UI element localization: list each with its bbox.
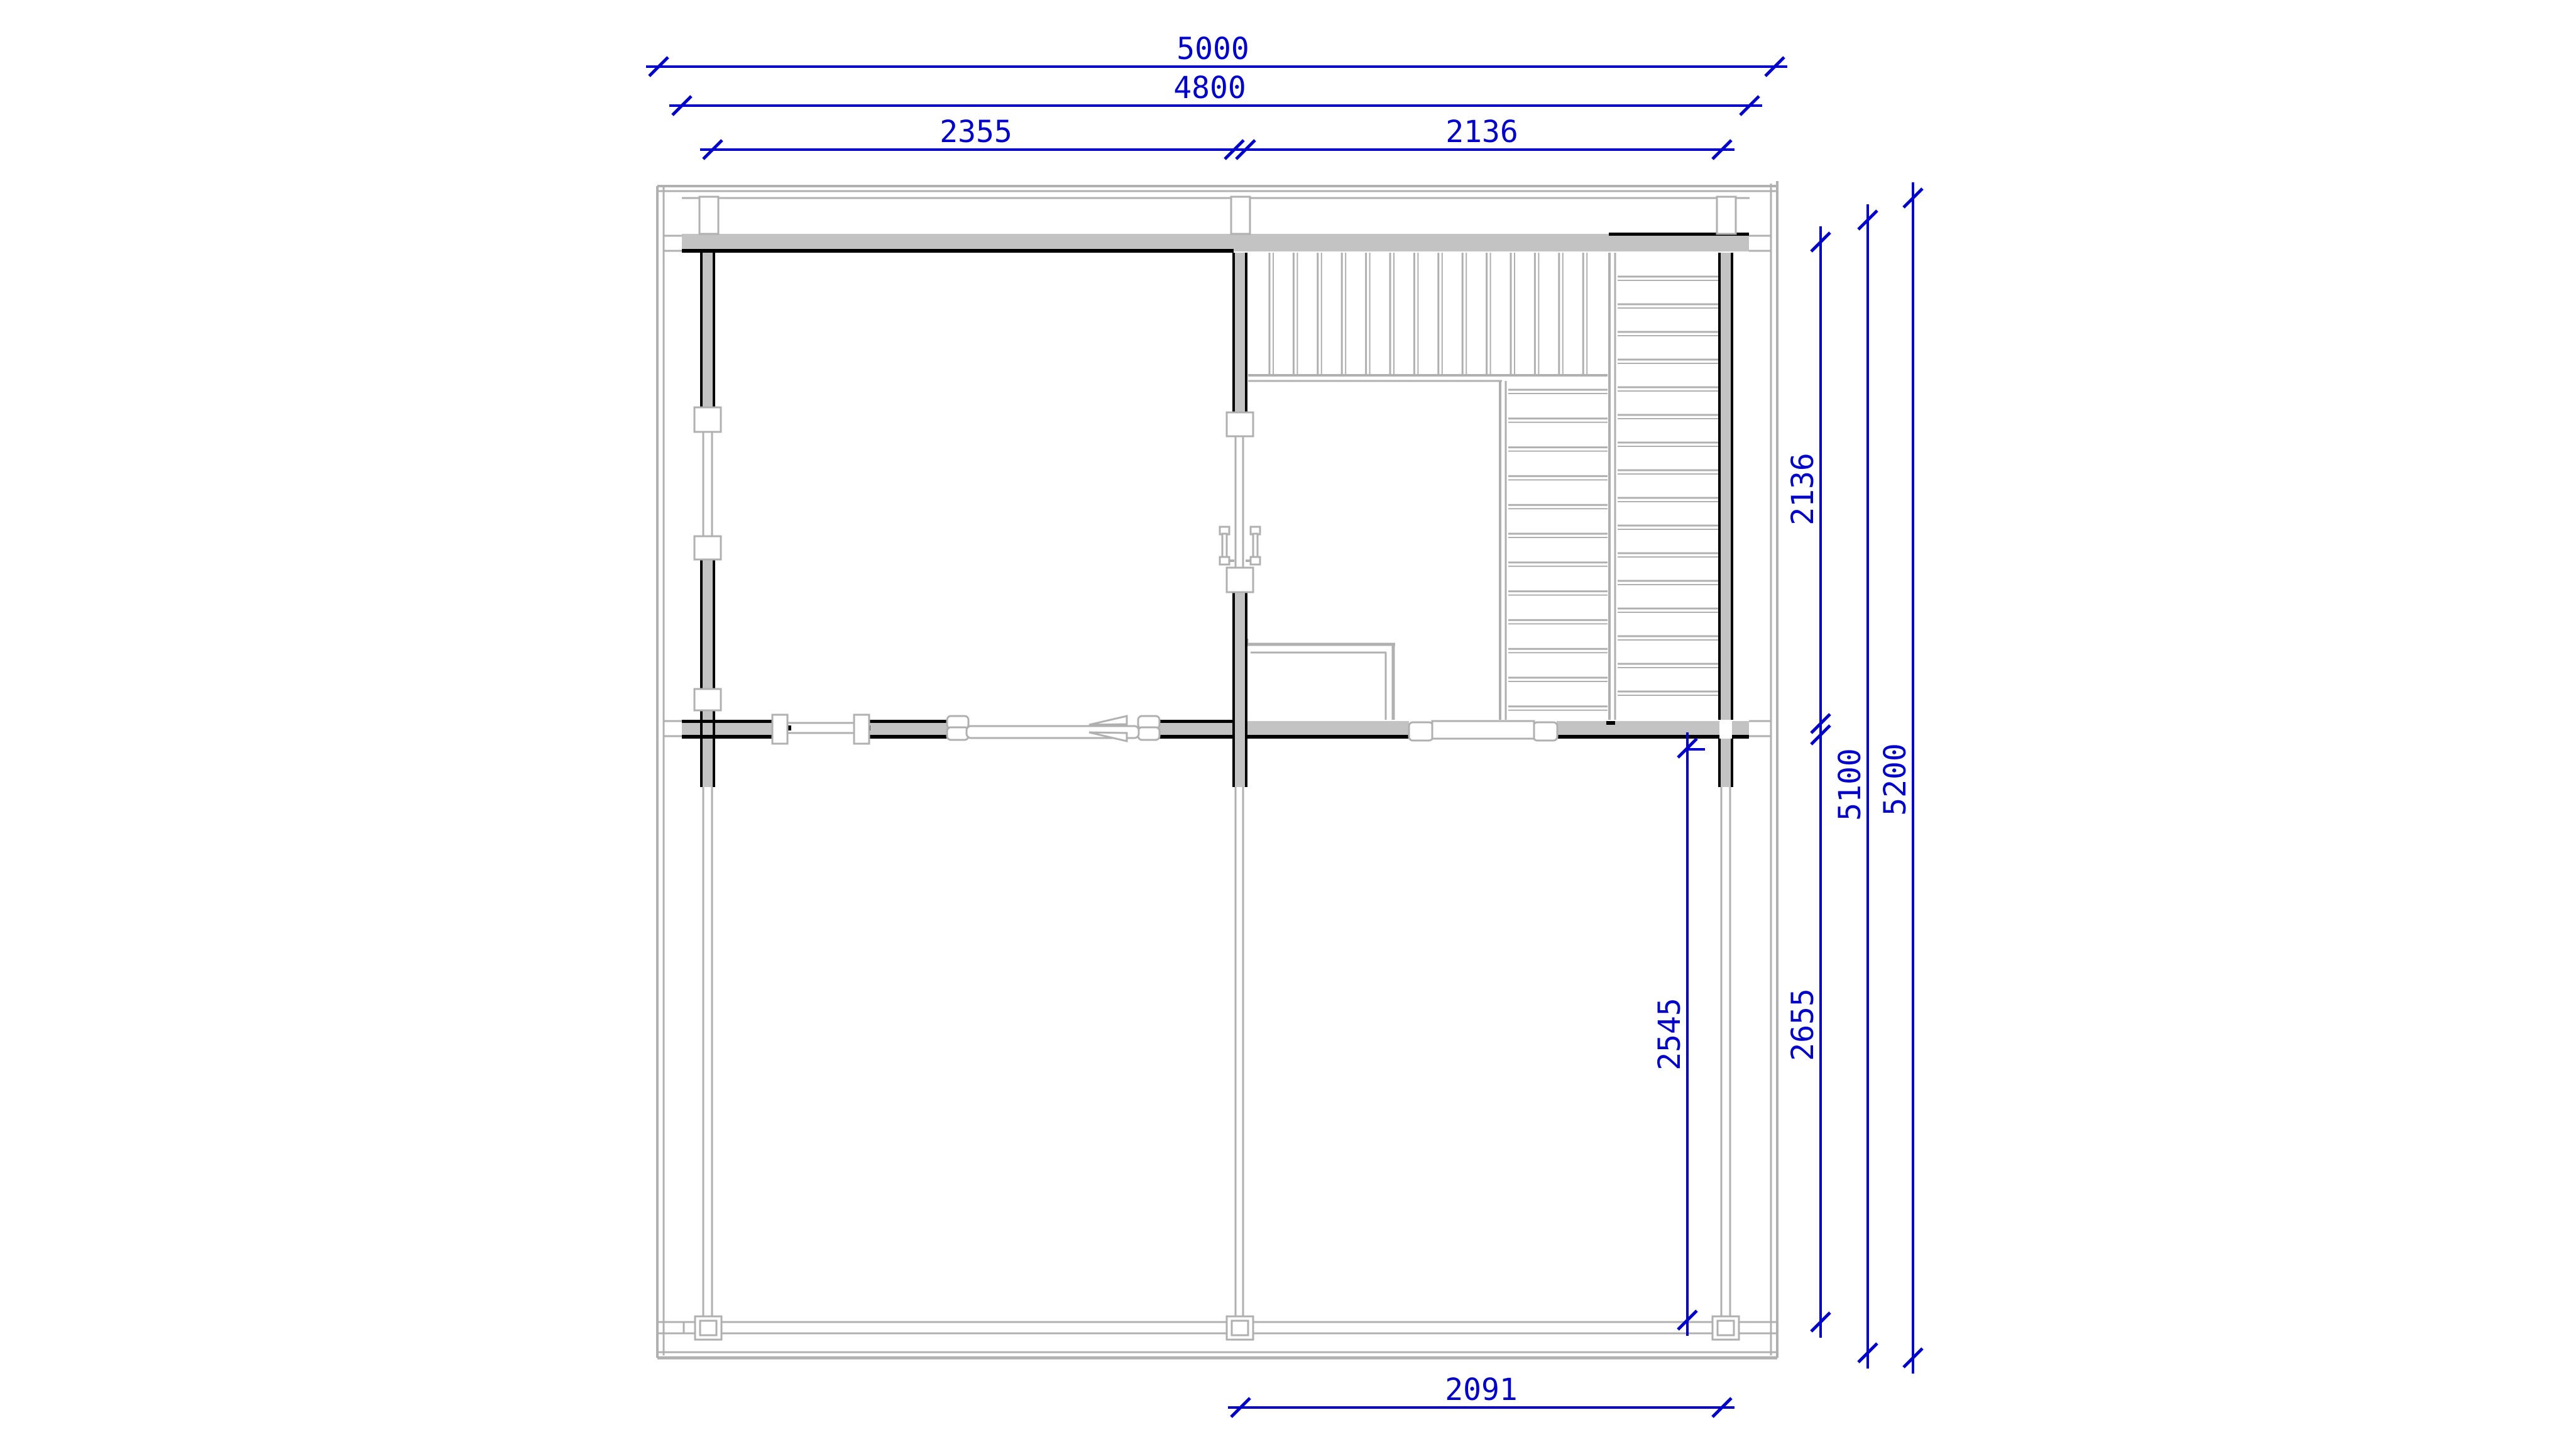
dim-room-width-label: 2355 bbox=[940, 114, 1012, 150]
left-wall-edge-2a bbox=[700, 558, 703, 690]
dim-overall-height-label: 5200 bbox=[1878, 743, 1913, 816]
floor-joint-square-left-inner bbox=[700, 1321, 716, 1335]
wall-joint-bracket-m2 bbox=[1227, 568, 1253, 592]
door2-frame-right bbox=[1533, 722, 1557, 741]
door-handle-left-stem bbox=[1222, 534, 1227, 558]
mid-wall-seg-a bbox=[682, 721, 774, 736]
mid-vert-wall-stub bbox=[1234, 739, 1246, 787]
mid-vert-edge-2b bbox=[1245, 591, 1247, 739]
floor-joint-square-right-inner bbox=[1718, 1321, 1734, 1335]
left-wall-stub-b bbox=[713, 739, 715, 787]
left-wall-stub bbox=[701, 739, 714, 787]
right-wall bbox=[1719, 253, 1732, 720]
wall-joint-bracket-m1 bbox=[1227, 412, 1253, 436]
wall-joint-bracket-w1 bbox=[772, 715, 787, 744]
wall-joint-bracket-l1 bbox=[694, 407, 721, 432]
top-log-wall bbox=[682, 234, 1749, 251]
wall-joint-bracket-w2 bbox=[854, 715, 869, 744]
mid-wall-top-b bbox=[869, 720, 953, 723]
left-wall-edge-3a bbox=[700, 709, 703, 739]
dim-bottom-width-label: 2091 bbox=[1445, 1372, 1518, 1408]
door1-post-right-b bbox=[1138, 727, 1159, 740]
right-wall-stub-a bbox=[1718, 739, 1721, 787]
dim-terrace-height-label: 2545 bbox=[1652, 998, 1687, 1071]
mid-vert-wall-seg-2 bbox=[1234, 591, 1246, 739]
mid-wall-seg-d bbox=[1246, 721, 1409, 736]
door2-leaf bbox=[1432, 721, 1534, 739]
dim-stair-width-label: 2136 bbox=[1445, 114, 1518, 150]
mid-wall-bot-f bbox=[1732, 735, 1749, 739]
mid-wall-seg-c bbox=[1154, 721, 1234, 736]
mid-vert-edge-2a bbox=[1232, 591, 1235, 739]
log-end-stub-left bbox=[699, 197, 718, 234]
mid-vert-edge-1a bbox=[1232, 253, 1235, 414]
door-handle-right-foot bbox=[1251, 557, 1260, 565]
log-end-stub-mid bbox=[1231, 197, 1250, 234]
right-wall-stub-b bbox=[1731, 739, 1733, 787]
dim-log-wall-width-label: 4800 bbox=[1173, 70, 1246, 106]
mid-wall-top-a bbox=[682, 720, 774, 723]
left-wall-edge-3b bbox=[713, 709, 715, 739]
mid-wall-bot-d bbox=[1246, 735, 1409, 739]
mid-vert-stub-b bbox=[1245, 739, 1247, 787]
left-wall-stub-a bbox=[700, 739, 703, 787]
left-wall-seg-1 bbox=[701, 253, 714, 409]
left-wall-edge-1a bbox=[700, 253, 703, 409]
mid-wall-bot-a bbox=[682, 735, 774, 739]
right-wall-edge-a bbox=[1718, 253, 1721, 720]
mid-wall-bot-b bbox=[869, 735, 953, 739]
log-end-stub-right bbox=[1717, 197, 1736, 234]
door-handle-right-stem bbox=[1253, 534, 1258, 558]
wall-joint-bracket-l3 bbox=[694, 689, 721, 710]
mid-wall-seg-f bbox=[1732, 721, 1749, 736]
door1-post-left-b bbox=[947, 727, 968, 740]
left-wall-seg-3 bbox=[701, 709, 714, 739]
dim-stair-height-label: 2136 bbox=[1785, 453, 1821, 526]
floor-joint-square-mid-inner bbox=[1232, 1321, 1248, 1335]
wall-joint-bracket-l2 bbox=[694, 536, 721, 559]
mid-vert-edge-1b bbox=[1245, 253, 1247, 414]
floor-plan-canvas: 5000480023552136213626555100520025452091 bbox=[0, 0, 2576, 1449]
right-wall-stub bbox=[1719, 739, 1732, 787]
left-wall-edge-1b bbox=[713, 253, 715, 409]
door1-swing-flag-up bbox=[1089, 716, 1127, 725]
mid-vert-stub-a bbox=[1232, 739, 1235, 787]
mid-wall-bot-c bbox=[1154, 735, 1234, 739]
dim-lower-height-label: 2655 bbox=[1785, 988, 1821, 1061]
dim-overall-width-label: 5000 bbox=[1176, 31, 1249, 67]
mid-vert-wall-seg-1 bbox=[1234, 253, 1246, 414]
floor-plan-drawing: 5000480023552136213626555100520025452091 bbox=[0, 0, 2576, 1449]
door-handle-left-foot bbox=[1220, 557, 1229, 565]
top-wall-bottom-edge bbox=[682, 249, 1234, 253]
mid-wall-bot-e bbox=[1557, 735, 1719, 739]
door2-frame-left bbox=[1409, 722, 1433, 741]
left-wall-edge-2b bbox=[713, 558, 715, 690]
divider-wall-dash bbox=[1606, 721, 1615, 725]
right-wall-edge-b bbox=[1731, 253, 1733, 720]
dim-inner-height-label: 5100 bbox=[1833, 748, 1868, 821]
mid-wall-seg-e bbox=[1557, 721, 1719, 736]
left-wall-seg-2 bbox=[701, 558, 714, 690]
mid-wall-top-c bbox=[1154, 720, 1234, 723]
mid-wall-seg-b bbox=[869, 721, 953, 736]
